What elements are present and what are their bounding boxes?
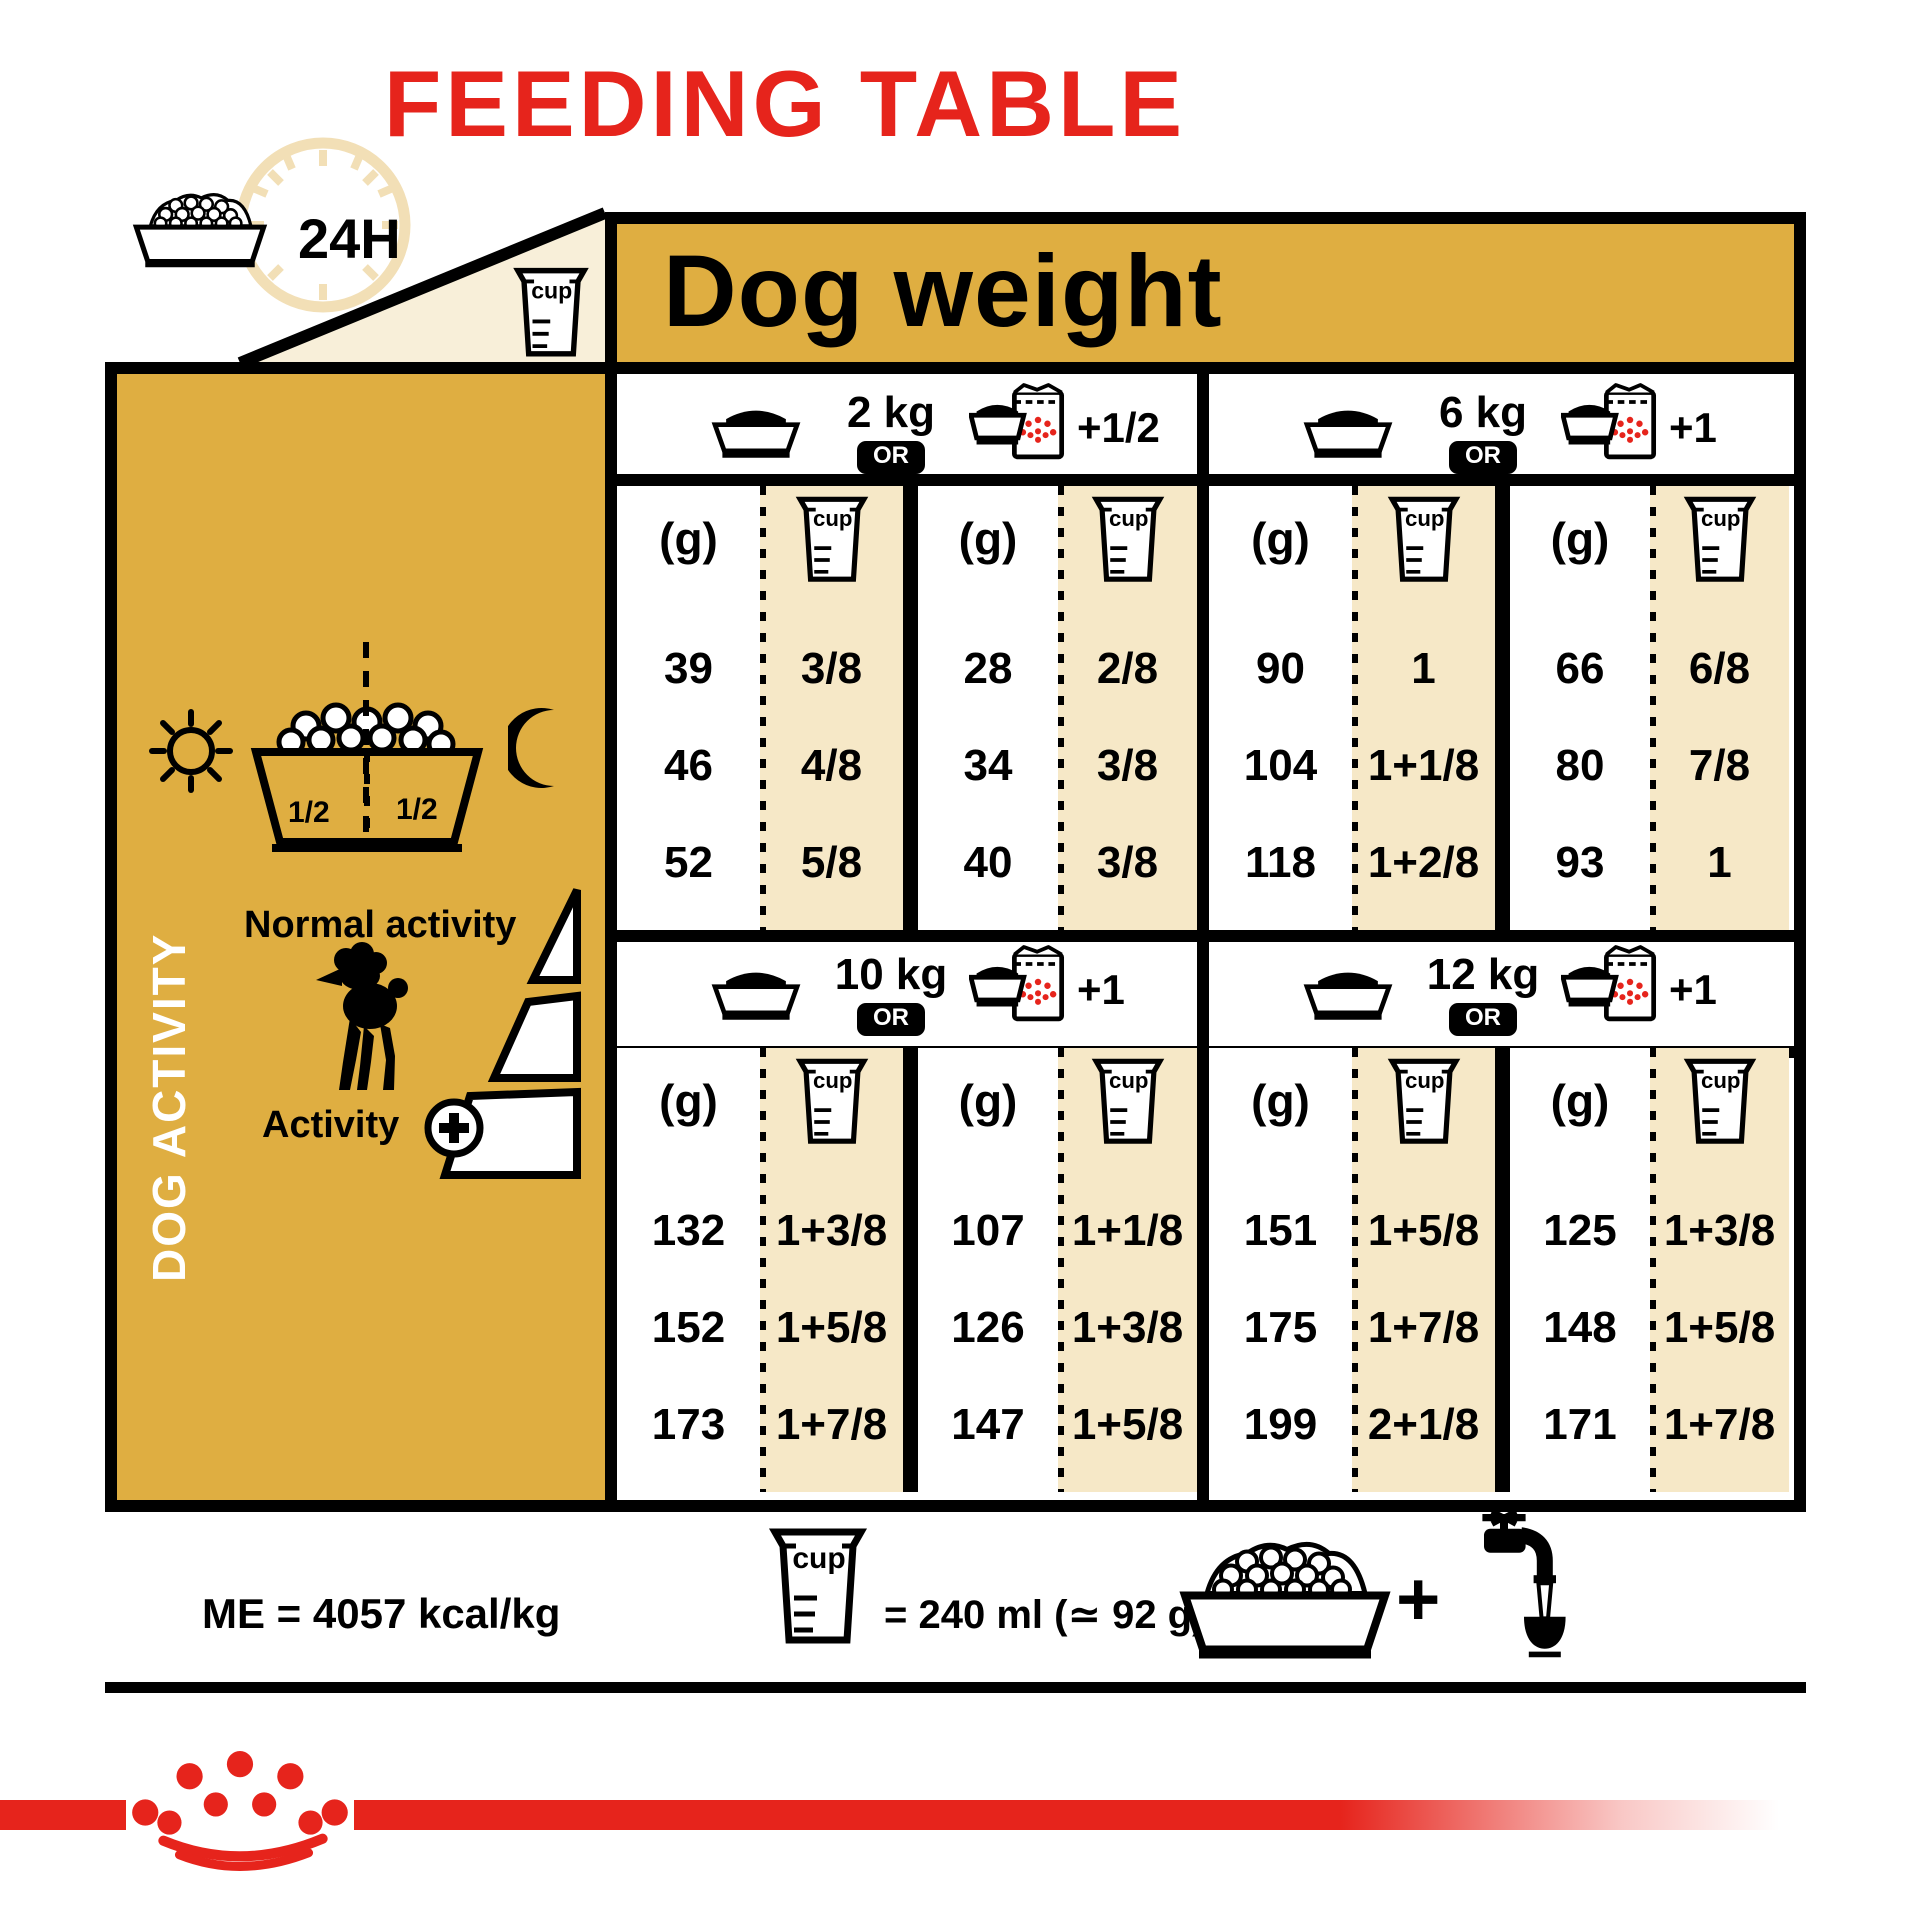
grams-value: 118 xyxy=(1209,838,1352,888)
grams-column: (g) 28 34 40 xyxy=(918,486,1058,930)
cup-value: 5/8 xyxy=(760,838,903,888)
cup-value: 7/8 xyxy=(1650,741,1789,791)
grams-value: 126 xyxy=(918,1303,1058,1353)
cup-icon xyxy=(1683,1056,1757,1148)
cup-value: 1+5/8 xyxy=(1352,1206,1495,1256)
grams-column: (g) 151 175 199 xyxy=(1209,1048,1352,1492)
cup-icon xyxy=(1683,494,1757,586)
grams-value: 104 xyxy=(1209,741,1352,791)
grams-value: 34 xyxy=(918,741,1058,791)
grams-header: (g) xyxy=(1510,1074,1650,1128)
dog-weight-value: 6 kg xyxy=(1415,388,1551,438)
cup-value: 1+3/8 xyxy=(760,1206,903,1256)
cup-value: 1 xyxy=(1650,838,1789,888)
grams-value: 132 xyxy=(617,1206,760,1256)
pair-divider xyxy=(903,486,918,930)
grid-line xyxy=(105,362,1806,374)
cup-column: 6/8 7/8 1 xyxy=(1650,486,1789,930)
grams-value: 199 xyxy=(1209,1400,1352,1450)
or-badge: OR xyxy=(1449,441,1517,474)
bowl-pouch-icon xyxy=(969,944,1073,1036)
cup-value: 1+5/8 xyxy=(760,1303,903,1353)
grams-column: (g) 39 46 52 xyxy=(617,486,760,930)
cup-value: 2+1/8 xyxy=(1352,1400,1495,1450)
or-badge: OR xyxy=(857,1003,925,1036)
cup-icon xyxy=(1091,1056,1165,1148)
bowl-pouch-icon xyxy=(1561,944,1665,1036)
grid-line xyxy=(605,212,617,1512)
dog-activity-vertical-label: DOG ACTIVITY xyxy=(142,862,196,1282)
grams-value: 80 xyxy=(1510,741,1650,791)
grams-header: (g) xyxy=(918,1074,1058,1128)
cup-value: 1+7/8 xyxy=(760,1400,903,1450)
grams-value: 173 xyxy=(617,1400,760,1450)
cup-value: 3/8 xyxy=(760,644,903,694)
pair-divider xyxy=(1495,486,1510,930)
grid-line xyxy=(1794,212,1806,1512)
weight-section-data: (g) 90 104 118 1 1+1/8 1+2/8 (g) 66 80 9… xyxy=(1209,486,1789,930)
cup-volume-label: = 240 ml (≃ 92 g) xyxy=(884,1592,1205,1638)
half-left-label: 1/2 xyxy=(288,796,330,830)
grams-value: 93 xyxy=(1510,838,1650,888)
cup-icon xyxy=(1387,1056,1461,1148)
extra-pouch-label: +1/2 xyxy=(1077,404,1160,452)
grams-value: 90 xyxy=(1209,644,1352,694)
bowl-pouch-icon xyxy=(969,382,1073,474)
poodle-silhouette xyxy=(300,942,420,1097)
bowl-icon xyxy=(1301,968,1395,1024)
grams-value: 147 xyxy=(918,1400,1058,1450)
weight-section-header: 2 kg OR +1/2 xyxy=(617,380,1197,474)
cup-icon xyxy=(1091,494,1165,586)
red-band-right xyxy=(354,1800,1920,1830)
grams-header: (g) xyxy=(617,512,760,566)
or-badge: OR xyxy=(857,441,925,474)
grid-line xyxy=(105,362,117,1512)
bowl-icon xyxy=(1301,406,1395,462)
cup-value: 6/8 xyxy=(1650,644,1789,694)
bowl-pouch-icon xyxy=(1561,382,1665,474)
grams-value: 28 xyxy=(918,644,1058,694)
red-band-left xyxy=(0,1800,126,1830)
meal-split-dotted-line xyxy=(363,642,369,842)
cup-value: 2/8 xyxy=(1058,644,1197,694)
weight-section: 12 kg OR +1 (g) 151 175 199 1+5/8 1+7/8 … xyxy=(1209,942,1789,1492)
weight-section-data: (g) 132 152 173 1+3/8 1+5/8 1+7/8 (g) 10… xyxy=(617,1048,1197,1492)
grams-value: 175 xyxy=(1209,1303,1352,1353)
cup-column: 1+5/8 1+7/8 2+1/8 xyxy=(1352,1048,1495,1492)
grams-header: (g) xyxy=(918,512,1058,566)
weight-section: 10 kg OR +1 (g) 132 152 173 1+3/8 1+5/8 … xyxy=(617,942,1197,1492)
weight-section-data: (g) 151 175 199 1+5/8 1+7/8 2+1/8 (g) 12… xyxy=(1209,1048,1789,1492)
cup-column: 1 1+1/8 1+2/8 xyxy=(1352,486,1495,930)
weight-section-header: 10 kg OR +1 xyxy=(617,942,1197,1036)
cup-value: 1+3/8 xyxy=(1058,1303,1197,1353)
grams-column: (g) 125 148 171 xyxy=(1510,1048,1650,1492)
dog-weight-header: Dog weight xyxy=(617,224,1794,362)
grams-value: 39 xyxy=(617,644,760,694)
cup-column: 1+3/8 1+5/8 1+7/8 xyxy=(1650,1048,1789,1492)
me-kcal-label: ME = 4057 kcal/kg xyxy=(202,1590,560,1638)
cup-value: 1+7/8 xyxy=(1352,1303,1495,1353)
cup-value: 1 xyxy=(1352,644,1495,694)
grams-value: 66 xyxy=(1510,644,1650,694)
grams-value: 52 xyxy=(617,838,760,888)
grams-header: (g) xyxy=(617,1074,760,1128)
cup-column: 2/8 3/8 3/8 xyxy=(1058,486,1197,930)
activity-label: Activity xyxy=(262,1104,399,1147)
cup-value: 3/8 xyxy=(1058,838,1197,888)
cup-value: 3/8 xyxy=(1058,741,1197,791)
grams-header: (g) xyxy=(1510,512,1650,566)
or-badge: OR xyxy=(1449,1003,1517,1036)
cup-value: 1+3/8 xyxy=(1650,1206,1789,1256)
cup-value: 1+1/8 xyxy=(1058,1206,1197,1256)
weight-section-header: 6 kg OR +1 xyxy=(1209,380,1789,474)
grams-value: 148 xyxy=(1510,1303,1650,1353)
grams-header: (g) xyxy=(1209,512,1352,566)
weight-section-data: (g) 39 46 52 3/8 4/8 5/8 (g) 28 34 40 xyxy=(617,486,1197,930)
grams-value: 46 xyxy=(617,741,760,791)
grams-column: (g) 90 104 118 xyxy=(1209,486,1352,930)
cup-value: 4/8 xyxy=(760,741,903,791)
royal-canin-crown-logo xyxy=(126,1748,360,1879)
grams-column: (g) 66 80 93 xyxy=(1510,486,1650,930)
bowl-icon xyxy=(709,406,803,462)
cup-value: 1+7/8 xyxy=(1650,1400,1789,1450)
feeding-table-page: cup xyxy=(0,0,1920,1920)
moon-icon xyxy=(508,706,572,790)
kibble-bowl-icon xyxy=(1175,1524,1395,1676)
cup-icon xyxy=(768,1516,868,1658)
grams-value: 107 xyxy=(918,1206,1058,1256)
cup-column: 1+3/8 1+5/8 1+7/8 xyxy=(760,1048,903,1492)
plus-water-label: + xyxy=(1396,1556,1440,1643)
dog-weight-value: 2 kg xyxy=(823,388,959,438)
grams-column: (g) 132 152 173 xyxy=(617,1048,760,1492)
extra-pouch-label: +1 xyxy=(1669,966,1717,1014)
grams-value: 40 xyxy=(918,838,1058,888)
cup-value: 1+1/8 xyxy=(1352,741,1495,791)
grid-line xyxy=(1197,362,1209,1512)
pair-divider xyxy=(903,1048,918,1492)
half-right-label: 1/2 xyxy=(396,793,438,827)
grams-value: 125 xyxy=(1510,1206,1650,1256)
grams-column: (g) 107 126 147 xyxy=(918,1048,1058,1492)
dog-weight-value: 10 kg xyxy=(823,950,959,1000)
extra-pouch-label: +1 xyxy=(1669,404,1717,452)
extra-pouch-label: +1 xyxy=(1077,966,1125,1014)
grams-header: (g) xyxy=(1209,1074,1352,1128)
water-tap-icon xyxy=(1452,1508,1572,1660)
bowl-icon xyxy=(709,968,803,1024)
grid-line xyxy=(605,212,1806,224)
cup-value: 1+5/8 xyxy=(1650,1303,1789,1353)
grams-value: 171 xyxy=(1510,1400,1650,1450)
divider-rule xyxy=(105,1682,1806,1693)
cup-icon xyxy=(1387,494,1461,586)
weight-section-header: 12 kg OR +1 xyxy=(1209,942,1789,1036)
activity-plus-icon xyxy=(418,1092,490,1164)
cup-icon xyxy=(512,266,590,360)
pair-divider xyxy=(1495,1048,1510,1492)
sun-icon xyxy=(148,708,234,794)
cup-value: 1+5/8 xyxy=(1058,1400,1197,1450)
grams-value: 151 xyxy=(1209,1206,1352,1256)
cup-column: 1+1/8 1+3/8 1+5/8 xyxy=(1058,1048,1197,1492)
weight-section: 6 kg OR +1 (g) 90 104 118 1 1+1/8 1+2/8 xyxy=(1209,380,1789,930)
cup-icon xyxy=(795,494,869,586)
weight-section: 2 kg OR +1/2 (g) 39 46 52 3/8 4/8 5/8 xyxy=(617,380,1197,930)
cup-icon xyxy=(795,1056,869,1148)
dog-weight-label: Dog weight xyxy=(663,224,1223,358)
cup-column: 3/8 4/8 5/8 xyxy=(760,486,903,930)
cup-value: 1+2/8 xyxy=(1352,838,1495,888)
grams-value: 152 xyxy=(617,1303,760,1353)
dog-weight-value: 12 kg xyxy=(1415,950,1551,1000)
